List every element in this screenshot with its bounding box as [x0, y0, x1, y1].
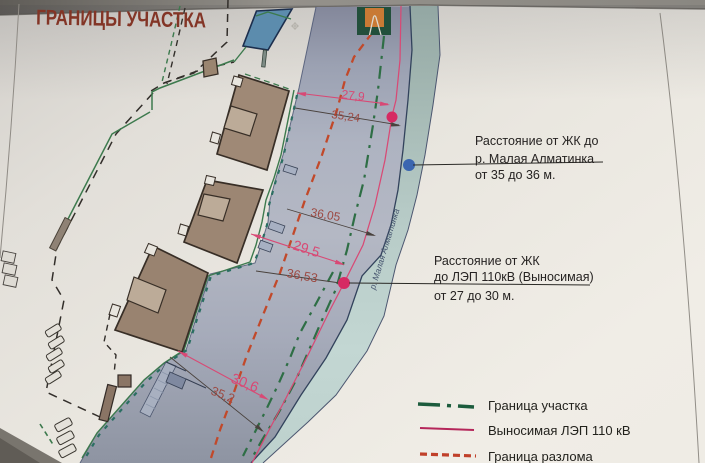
svg-text:от 27 до 30 м.: от 27 до 30 м. [434, 289, 514, 303]
svg-text:Расстояние от ЖК: Расстояние от ЖК [434, 254, 540, 268]
svg-text:27,9: 27,9 [341, 87, 366, 104]
svg-text:Граница разлома: Граница разлома [488, 449, 594, 463]
svg-text:ГРАНИЦЫ УЧАСТКА: ГРАНИЦЫ УЧАСТКА [36, 6, 206, 33]
svg-text:Граница участка: Граница участка [488, 398, 588, 413]
svg-text:р. Малая Алматинка: р. Малая Алматинка [475, 152, 594, 166]
svg-text:до ЛЭП 110кВ (Выносимая): до ЛЭП 110кВ (Выносимая) [434, 270, 594, 284]
svg-text:Расстояние от ЖК до: Расстояние от ЖК до [475, 134, 598, 148]
svg-text:Выносимая ЛЭП 110 кВ: Выносимая ЛЭП 110 кВ [488, 423, 631, 438]
svg-text:от 35 до 36 м.: от 35 до 36 м. [475, 168, 555, 182]
